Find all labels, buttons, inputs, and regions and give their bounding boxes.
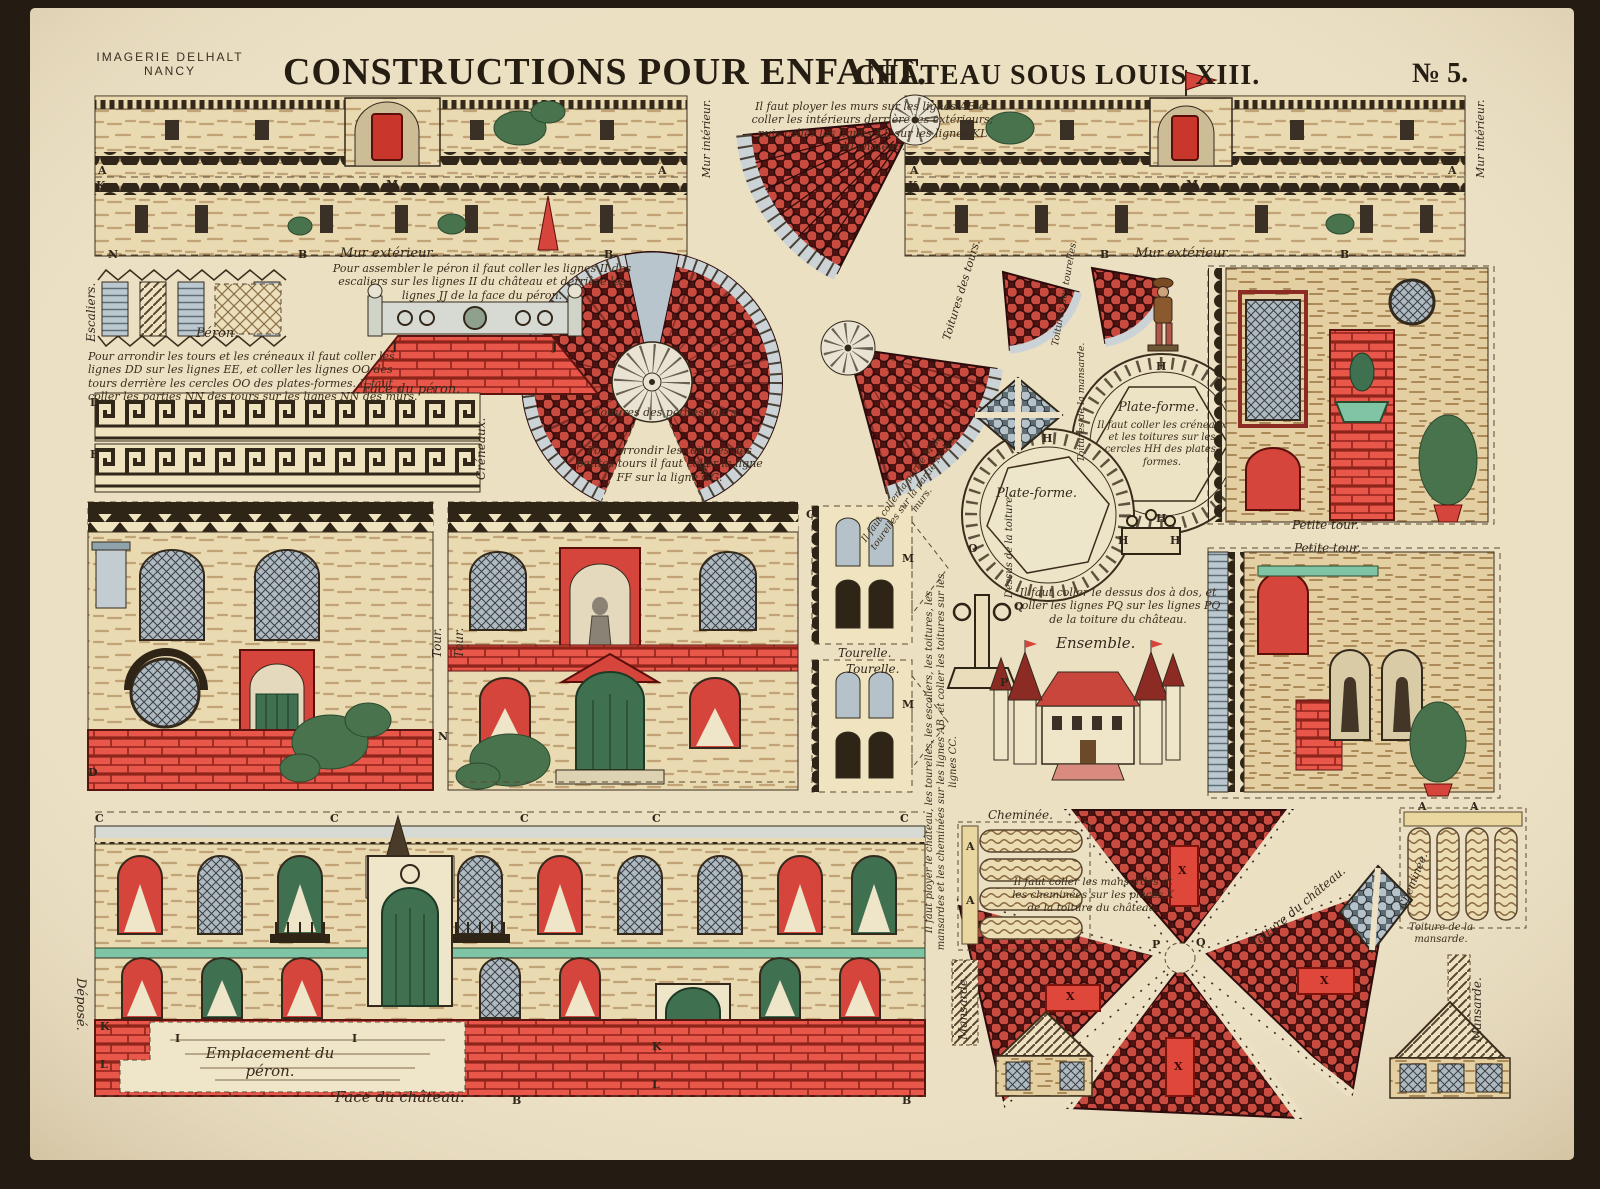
registration-letter: E [90,448,98,461]
plate-number: № 5. [1412,58,1468,90]
registration-letter: A [1448,164,1457,177]
label-tour-2: Tour. [452,628,466,658]
small-tower-facade-1 [1208,266,1494,524]
label-tourelle-1: Tourelle. [838,646,891,660]
registration-letter: K [100,1020,110,1033]
registration-letter: B [1100,248,1109,261]
registration-letter: F [700,464,708,477]
registration-letter: N [108,248,118,261]
registration-letter: B [902,1094,911,1107]
publisher-imprint: IMAGERIE DELHALT NANCY [95,50,245,78]
registration-letter: O [968,542,978,555]
registration-letter: A [966,894,975,907]
label-tour-1: Tour. [430,628,444,658]
roof-place-letter: X [1174,1060,1183,1073]
registration-letter: L [100,1058,108,1071]
registration-letter: M [902,698,914,711]
instruction-ployer: Il faut ployer le château, les tourelles… [924,562,961,962]
registration-letter: M [386,178,398,191]
roof-place-letter: X [1320,974,1329,987]
instruction-peron: Pour assembler le péron il faut coller l… [332,262,632,302]
registration-letter: C [520,812,529,825]
label-cheminee-left: Cheminée. [988,808,1053,822]
registration-letter: K [908,179,918,192]
left-wall-piece [95,96,687,256]
imprint-line1: IMAGERIE DELHALT [95,50,245,64]
registration-letter: I [352,1032,357,1045]
registration-letter: H [1170,534,1180,547]
registration-letter: C [806,508,815,521]
tower-facade-2 [448,502,798,790]
label-peron: Péron. [196,326,238,341]
label-tourelle-2: Tourelle. [846,662,899,676]
label-creneaux: Créneaux. [474,418,488,480]
label-toiture-de-la-mansarde: Toiture de la mansarde. [1396,922,1486,946]
registration-letter: K [96,179,106,192]
registration-letter: H [1118,534,1128,547]
label-toitures-petites-tours: Toitures des petites tours. [592,406,742,419]
registration-letter: L [652,1078,660,1091]
label-mansarde-left: Mansarde. [956,975,970,1040]
registration-letter: Q [1196,936,1206,949]
instruction-tours: Pour arrondir les tours et les créneaux … [88,350,423,404]
label-mur-exterieur-right: Mur extérieur. [1135,246,1230,261]
registration-letter: P [1152,938,1160,951]
registration-letter: A [658,164,667,177]
registration-letter: B [1340,248,1349,261]
registration-letter: M [902,552,914,565]
registration-letter: G [600,462,609,475]
label-depose: Déposé. [73,978,88,1031]
label-emplacement-du-peron: Emplacement du péron. [180,1044,360,1081]
registration-letter: A [966,840,975,853]
sheet-artwork [0,0,1600,1189]
photographed-print-sheet: IMAGERIE DELHALT NANCY CONSTRUCTIONS POU… [0,0,1600,1189]
registration-letter: D [88,766,98,779]
label-plate-forme-1: Plate-forme. [1118,400,1199,415]
label-toitures-mansarde-small: Toitures de la mansarde. [1076,343,1087,462]
registration-letter: M [1186,178,1198,191]
instruction-walls: Il faut ployer les murs sur les lignes A… [750,100,995,154]
roof-place-letter: X [1066,990,1075,1003]
registration-letter: Q [1014,600,1024,613]
imprint-line2: NANCY [95,64,245,78]
roof-place-letter: X [1178,864,1187,877]
sheet-subtitle: CHÂTEAU SOUS LOUIS XIII. [855,60,1260,92]
label-mur-interieur-left: Mur intérieur. [700,99,713,178]
instruction-plate-forme: Il faut coller les créneaux et les toitu… [1092,420,1232,469]
registration-letter: N [438,730,448,743]
registration-letter: C [330,812,339,825]
label-petite-tour-2: Petite tour. [1294,541,1361,555]
label-mansarde-right: Mansarde. [1470,977,1484,1042]
registration-letter: H [1156,360,1166,373]
registration-letter: D [90,396,100,409]
label-face-du-chateau: Face du château. [335,1088,465,1106]
label-mur-exterieur-left: Mur extérieur. [340,246,435,261]
registration-letter: P [1000,676,1008,689]
registration-letter: J [392,340,397,353]
registration-letter: C [900,812,909,825]
label-escaliers: Escaliers. [84,283,98,342]
label-mur-interieur-right: Mur intérieur. [1474,99,1487,178]
registration-letter: A [1418,800,1427,813]
instruction-mansardes: Il faut coller les mansardes et les chem… [1012,876,1174,914]
registration-letter: K [652,1040,662,1053]
right-wall-piece [905,70,1465,256]
registration-letter: B [604,248,613,261]
label-petite-tour-1: Petite tour. [1292,518,1359,532]
registration-letter: H [1042,432,1052,445]
sheet-title: CONSTRUCTIONS POUR ENFANT. [283,50,927,94]
registration-letter: H [1156,512,1166,525]
small-tower-facade-2 [1208,548,1500,798]
registration-letter: C [95,812,104,825]
registration-letter: A [910,164,919,177]
registration-letter: B [298,248,307,261]
registration-letter: A [98,164,107,177]
registration-letter: B [512,1094,521,1107]
instruction-dessus: Il faut coller le dessus dos à dos, et c… [1008,586,1228,626]
registration-letter: J [552,340,557,353]
tower-facade-1 [88,502,433,790]
label-ensemble: Ensemble. [1056,634,1135,652]
registration-letter: A [1470,800,1479,813]
registration-letter: C [652,812,661,825]
label-dessus-toiture: Dessus de la toiture. [1004,494,1015,598]
registration-letter: I [175,1032,180,1045]
